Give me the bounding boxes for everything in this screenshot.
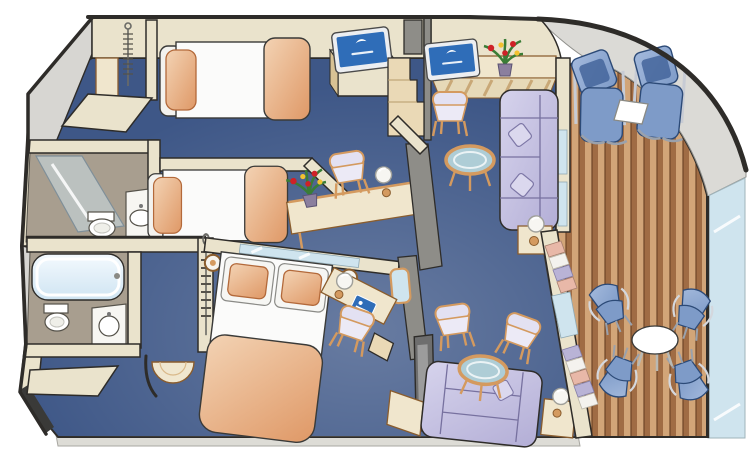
window [558, 182, 567, 226]
toilet-icon [88, 212, 115, 237]
twin-bed [148, 166, 288, 242]
closet-shelf [96, 58, 118, 96]
entry-recess [404, 20, 422, 54]
upper-bathroom [26, 140, 160, 246]
queen-bed [197, 252, 334, 445]
sofa-vertical [500, 90, 558, 230]
room-divider-wall [160, 158, 312, 171]
twin-bed [160, 38, 310, 120]
window [558, 130, 567, 174]
family-suite-floorplan [0, 0, 750, 460]
square-table [614, 100, 648, 124]
tv-sitting-area [424, 39, 480, 82]
side-table-lamp [528, 216, 544, 232]
floorplan-canvas [0, 0, 750, 460]
tv-cabin-a [331, 26, 393, 73]
closet-wall [146, 20, 157, 100]
toilet-icon [44, 304, 69, 331]
